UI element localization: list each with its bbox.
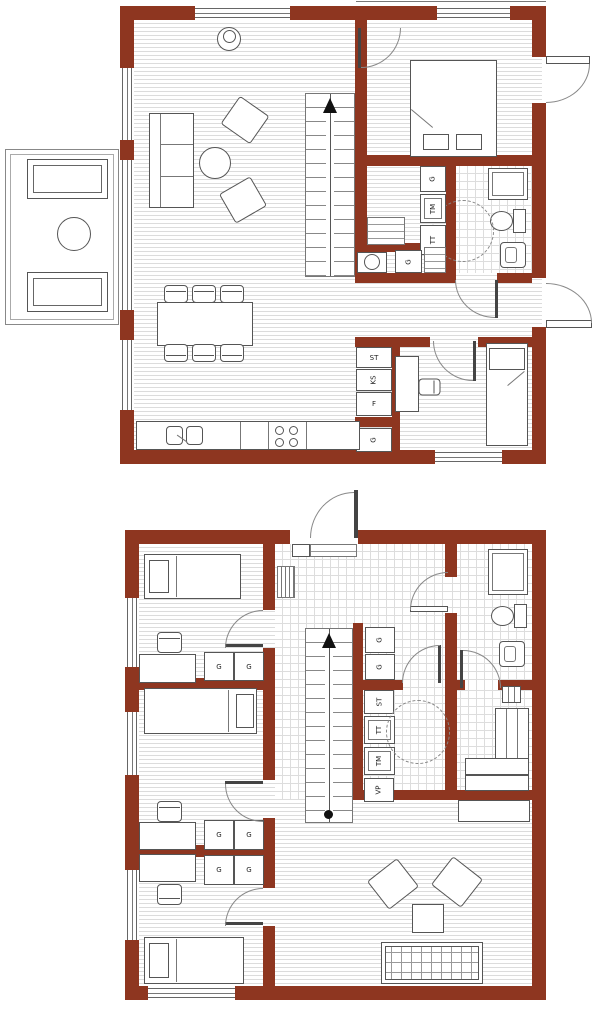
- door-swing-arc: [310, 492, 354, 538]
- closet-g: G: [420, 166, 446, 192]
- fridge-ks: KS: [356, 369, 392, 391]
- counter-divider: [268, 422, 269, 449]
- entry-sill-mat: [310, 544, 357, 557]
- closet-label: KS: [370, 375, 378, 384]
- window: [435, 452, 502, 462]
- wall-segment: [263, 818, 275, 888]
- freezer-f: F: [356, 392, 392, 416]
- sofa-daybed: [381, 942, 483, 984]
- wardrobe-g: G: [204, 652, 234, 681]
- wall-segment: [120, 310, 134, 340]
- wall-segment: [125, 775, 139, 870]
- door-leaf: [473, 341, 476, 381]
- desk-chair: [157, 801, 182, 822]
- desk: [139, 854, 196, 882]
- stove-burner: [289, 438, 298, 447]
- appliance-label: TT: [429, 236, 437, 244]
- dining-chair: [164, 344, 188, 362]
- stair-start-dot: [324, 810, 333, 819]
- bench: [458, 800, 530, 822]
- bed-pillow: [456, 134, 482, 150]
- toilet-tank: [513, 209, 526, 233]
- wall-segment: [125, 986, 148, 1000]
- wardrobe-g: G: [204, 855, 234, 885]
- counter-divider: [306, 422, 307, 449]
- toilet-bowl: [491, 606, 514, 626]
- floor1-staircase: [305, 93, 355, 277]
- kitchen-sink-basin: [166, 426, 183, 445]
- wall-segment: [125, 530, 139, 598]
- stove-burner: [275, 438, 284, 447]
- wall-segment: [120, 6, 134, 68]
- closet-label: G: [246, 866, 251, 874]
- wall-segment: [445, 613, 457, 800]
- door-swing-arc: [546, 64, 590, 103]
- entrance-door-leaf: [354, 490, 358, 538]
- bed-pillow: [423, 134, 449, 150]
- dining-chair: [192, 285, 216, 303]
- wall-segment: [355, 417, 400, 427]
- wall-segment: [532, 544, 546, 986]
- wardrobe-g: G: [234, 855, 264, 885]
- desk-chair: [157, 632, 182, 653]
- bathroom-sink-basin: [505, 247, 517, 263]
- washing-machine: TM: [364, 747, 395, 775]
- coffee-table: [412, 904, 444, 933]
- appliance-label: VP: [375, 785, 383, 794]
- wall-segment: [532, 103, 546, 278]
- washing-machine: TM: [420, 194, 446, 223]
- exterior-door-leaf: [546, 56, 590, 64]
- floor2-staircase: [305, 628, 353, 823]
- wall-segment: [532, 6, 546, 57]
- wall-segment: [445, 790, 532, 800]
- dining-chair: [220, 285, 244, 303]
- terrace-sliding-door: [122, 160, 132, 310]
- roof-eave-line: [356, 1, 546, 2]
- closet-label: G: [376, 637, 384, 642]
- wardrobe-g: G: [365, 627, 395, 653]
- kitchen-sink-basin: [186, 426, 203, 445]
- appliance-label: TM: [429, 203, 437, 213]
- desk-chair: [157, 884, 182, 905]
- desk-chair: [419, 379, 441, 396]
- closet-label: G: [246, 663, 251, 671]
- dining-chair: [164, 285, 188, 303]
- wall-segment: [358, 530, 546, 544]
- closet-label: F: [372, 400, 376, 408]
- sofa-cushion-line: [161, 176, 193, 177]
- closet-label: G: [216, 831, 221, 839]
- wall-segment: [235, 986, 546, 1000]
- sauna-bench-line: [506, 709, 507, 759]
- closet-label: G: [216, 663, 221, 671]
- sofa-cushion-line: [161, 144, 193, 145]
- closet-g: G: [356, 428, 392, 452]
- closet-label: G: [376, 664, 384, 669]
- window: [127, 598, 137, 667]
- door-leaf: [495, 280, 498, 318]
- counter-divider: [240, 422, 241, 449]
- bed-pillow: [149, 943, 169, 978]
- door-swing-arc: [546, 283, 592, 323]
- window: [195, 8, 290, 18]
- closet-label: ST: [375, 698, 383, 707]
- desk: [139, 654, 196, 683]
- wall-segment: [125, 667, 139, 712]
- bed-fold-line: [176, 939, 177, 982]
- stair-up-arrow-icon: [323, 98, 337, 113]
- sauna-bench: [495, 708, 529, 760]
- sauna-bench-line: [517, 709, 518, 759]
- side-table: [199, 147, 231, 179]
- bathroom-sink-basin: [504, 646, 516, 662]
- wall-segment: [497, 273, 532, 283]
- sauna-stove: [502, 686, 521, 703]
- floor-lamp-shade: [223, 30, 236, 43]
- wall-segment: [263, 544, 275, 610]
- terrace-table: [57, 217, 91, 251]
- window: [122, 68, 132, 140]
- stair-rail: [330, 94, 331, 276]
- floor-plan-drawing: G TM TT G ST KS F G: [0, 0, 600, 1009]
- wall-segment: [532, 327, 546, 464]
- bed-pillow: [236, 694, 254, 728]
- stove-burner: [275, 426, 284, 435]
- wall-segment: [120, 140, 134, 160]
- stair-rail: [329, 629, 330, 822]
- entry-mat: [424, 247, 446, 273]
- wall-segment: [120, 450, 435, 464]
- wall-segment: [353, 623, 363, 800]
- hall-shelving: [367, 217, 405, 245]
- wall-segment: [263, 926, 275, 986]
- toilet-tank: [514, 604, 527, 628]
- sofa-back-line: [160, 114, 161, 207]
- desk: [139, 822, 196, 850]
- sauna-bench-step: [465, 758, 529, 775]
- cleaning-closet-st: ST: [364, 690, 394, 714]
- wardrobe-g: G: [234, 820, 264, 850]
- window: [148, 988, 235, 998]
- appliance-label: TM: [375, 756, 383, 766]
- stair-up-arrow-icon: [322, 633, 336, 648]
- sofa: [149, 113, 194, 208]
- terrace-sofa-top-cushion: [33, 165, 102, 193]
- water-heater: [364, 254, 380, 270]
- closet-label: ST: [370, 354, 379, 362]
- bed-fold-line: [176, 556, 177, 597]
- closet-g: G: [395, 250, 422, 273]
- window: [437, 8, 510, 18]
- wall-segment: [125, 530, 290, 544]
- wardrobe-g: G: [365, 654, 395, 680]
- wall-segment: [355, 337, 430, 347]
- dining-chair: [192, 344, 216, 362]
- window: [127, 870, 137, 940]
- radiator: [277, 566, 295, 598]
- closet-label: G: [216, 866, 221, 874]
- desk: [395, 356, 419, 412]
- shower-tray-inner: [492, 172, 524, 196]
- bed-pillow: [149, 560, 169, 593]
- shower-tray-inner: [492, 553, 524, 591]
- terrace-sofa-bottom-cushion: [33, 278, 102, 306]
- dining-table: [157, 302, 253, 346]
- wardrobe-g: G: [234, 652, 264, 681]
- closet-label: G: [405, 259, 413, 264]
- boiler-vp: VP: [364, 778, 394, 802]
- cleaning-closet-st: ST: [356, 347, 392, 368]
- window: [127, 712, 137, 775]
- appliance-label: TT: [376, 726, 384, 734]
- entry-step: [292, 544, 310, 557]
- closet-label: G: [370, 437, 378, 442]
- stove-burner: [289, 426, 298, 435]
- dining-chair: [220, 344, 244, 362]
- closet-label: G: [429, 176, 437, 181]
- bed-pillow: [489, 348, 525, 370]
- accessibility-turning-circle: [386, 700, 450, 764]
- window: [122, 340, 132, 410]
- wardrobe-g: G: [204, 820, 234, 850]
- closet-label: G: [246, 831, 251, 839]
- sauna-stove-line: [514, 687, 515, 702]
- wall-segment: [263, 648, 275, 780]
- sauna-stove-line: [508, 687, 509, 702]
- sauna-bench-step: [465, 775, 529, 791]
- bed-fold-line: [228, 690, 229, 732]
- wall-segment: [355, 273, 455, 283]
